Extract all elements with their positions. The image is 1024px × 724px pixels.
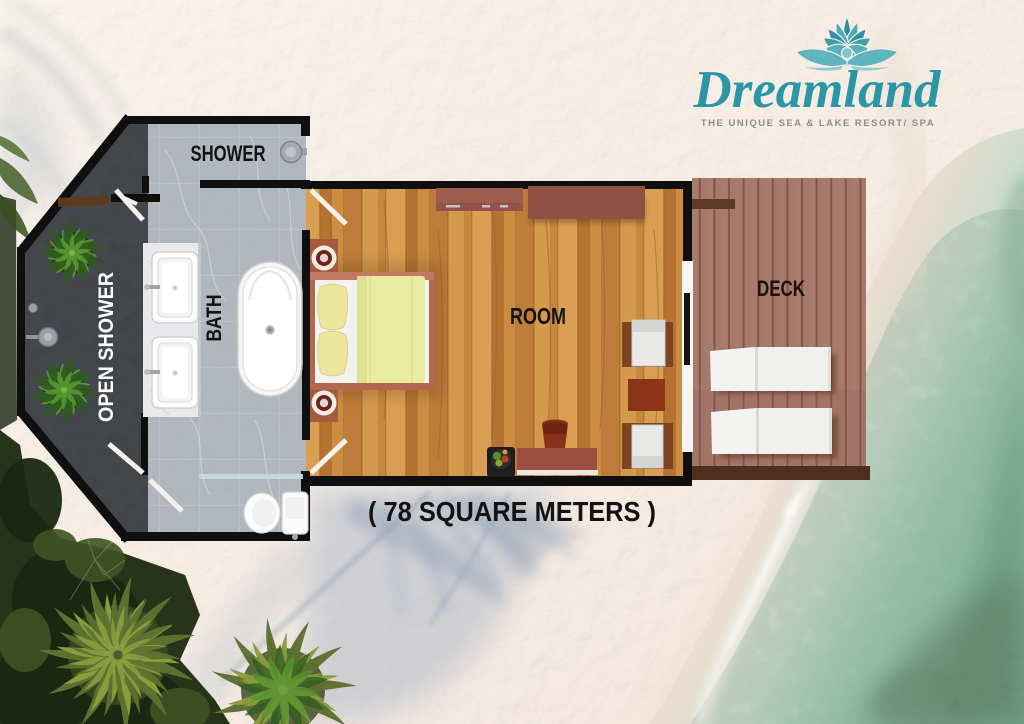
svg-text:BATH: BATH [203,295,226,342]
svg-text:SHOWER: SHOWER [191,141,266,166]
svg-text:Dreamland: Dreamland [693,61,942,119]
svg-text:( 78 SQUARE METERS ): ( 78 SQUARE METERS ) [368,496,656,527]
svg-text:DECK: DECK [757,276,805,301]
svg-text:OPEN SHOWER: OPEN SHOWER [95,272,118,422]
svg-text:THE UNIQUE SEA & LAKE RESORT/: THE UNIQUE SEA & LAKE RESORT/ SPA [701,118,935,129]
svg-text:ROOM: ROOM [510,303,566,329]
